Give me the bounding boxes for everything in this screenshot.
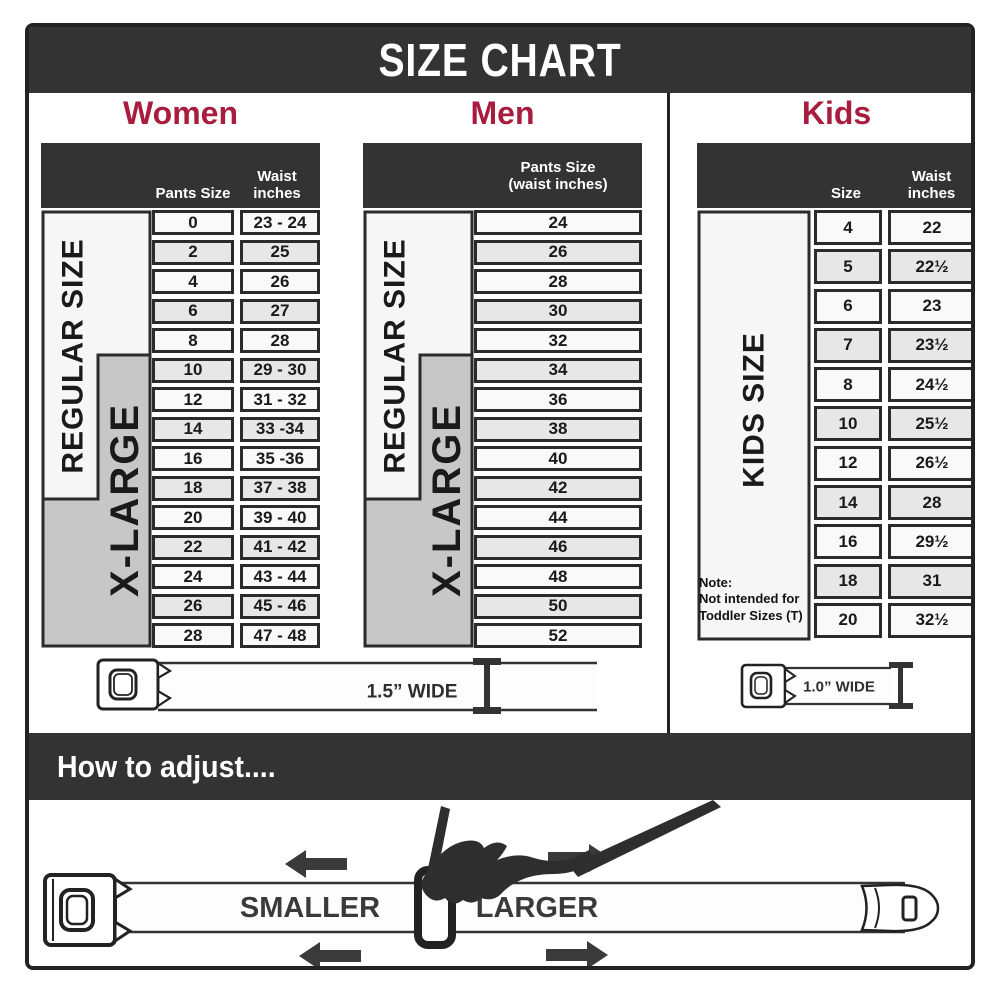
- size-cell: 47 - 48: [240, 623, 320, 648]
- size-cell: 28: [474, 269, 642, 294]
- men-regular-label: REGULAR SIZE: [379, 238, 412, 473]
- size-cell: 25½: [888, 406, 975, 441]
- adult-buckle-icon: [98, 660, 170, 709]
- size-cell: 31: [888, 564, 975, 599]
- men-sidebar: REGULAR SIZE X-LARGE: [363, 210, 474, 648]
- size-cell: 7: [814, 328, 882, 363]
- belt-width-illustrations: 1.5” WIDE 1.0” WIDE: [29, 653, 971, 733]
- size-cell: 48: [474, 564, 642, 589]
- size-cell: 8: [152, 328, 234, 353]
- size-cell: 8: [814, 367, 882, 402]
- size-cell: 42: [474, 476, 642, 501]
- women-title: Women: [41, 95, 320, 132]
- size-cell: 18: [814, 564, 882, 599]
- size-cell: 26: [240, 269, 320, 294]
- men-xlarge-label: X-LARGE: [425, 403, 469, 597]
- size-cell: 4: [814, 210, 882, 245]
- adjust-illustration: SMALLER LARGER: [29, 800, 971, 970]
- larger-arrow-bottom-icon: [546, 941, 608, 969]
- kids-size-grid: 422522½623723½824½1025½1226½14281629½183…: [814, 210, 975, 638]
- size-cell: 12: [814, 446, 882, 481]
- main-area: Women Pants Size Waist inches REGULAR SI…: [29, 93, 971, 733]
- women-xlarge-label: X-LARGE: [103, 403, 147, 597]
- kids-title: Kids: [697, 95, 975, 132]
- women-col1-header: Pants Size: [152, 185, 234, 202]
- size-cell: 40: [474, 446, 642, 471]
- size-cell: 50: [474, 594, 642, 619]
- size-cell: 36: [474, 387, 642, 412]
- size-cell: 22½: [888, 249, 975, 284]
- women-sidebar: REGULAR SIZE X-LARGE: [41, 210, 152, 648]
- size-cell: 16: [814, 524, 882, 559]
- size-cell: 28: [240, 328, 320, 353]
- title-band: SIZE CHART: [29, 27, 971, 93]
- men-size-grid: 242628303234363840424446485052: [474, 210, 642, 648]
- size-cell: 30: [474, 299, 642, 324]
- size-cell: 14: [814, 485, 882, 520]
- smaller-arrow-top-icon: [285, 850, 347, 878]
- size-cell: 20: [814, 603, 882, 638]
- adult-belt-width-label: 1.5” WIDE: [367, 682, 458, 703]
- size-cell: 46: [474, 535, 642, 560]
- size-cell: 32½: [888, 603, 975, 638]
- men-title: Men: [363, 95, 642, 132]
- size-cell: 45 - 46: [240, 594, 320, 619]
- men-col-header: Pants Size (waist inches): [474, 158, 642, 193]
- size-cell: 31 - 32: [240, 387, 320, 412]
- size-cell: 26½: [888, 446, 975, 481]
- size-cell: 27: [240, 299, 320, 324]
- size-cell: 26: [474, 240, 642, 265]
- size-cell: 14: [152, 417, 234, 442]
- size-cell: 28: [888, 485, 975, 520]
- smaller-arrow-bottom-icon: [299, 942, 361, 970]
- size-cell: 4: [152, 269, 234, 294]
- belt-tip: [862, 885, 938, 931]
- size-cell: 23 - 24: [240, 210, 320, 235]
- size-cell: 29½: [888, 524, 975, 559]
- kids-belt-width-label: 1.0” WIDE: [803, 679, 875, 696]
- size-cell: 10: [814, 406, 882, 441]
- page-title: SIZE CHART: [378, 33, 621, 87]
- women-col2-header: Waist inches: [237, 168, 317, 203]
- adjust-illustration-area: SMALLER LARGER: [29, 800, 971, 970]
- size-cell: 24½: [888, 367, 975, 402]
- size-cell: 35 -36: [240, 446, 320, 471]
- kids-col2-header: Waist inches: [887, 168, 975, 203]
- men-table-header: Pants Size (waist inches): [363, 143, 642, 208]
- size-cell: 16: [152, 446, 234, 471]
- adjust-heading: How to adjust....: [57, 749, 276, 785]
- size-cell: 6: [814, 289, 882, 324]
- size-cell: 20: [152, 505, 234, 530]
- size-cell: 41 - 42: [240, 535, 320, 560]
- pulled-strap: [569, 800, 721, 877]
- size-cell: 33 -34: [240, 417, 320, 442]
- size-cell: 34: [474, 358, 642, 383]
- kids-table-header: Size Waist inches: [697, 143, 975, 208]
- size-cell: 23½: [888, 328, 975, 363]
- size-cell: 10: [152, 358, 234, 383]
- size-cell: 12: [152, 387, 234, 412]
- size-cell: 0: [152, 210, 234, 235]
- kids-size-label: KIDS SIZE: [738, 332, 771, 488]
- size-cell: 6: [152, 299, 234, 324]
- size-cell: 39 - 40: [240, 505, 320, 530]
- size-cell: 38: [474, 417, 642, 442]
- women-table-header: Pants Size Waist inches: [41, 143, 320, 208]
- section-divider: [667, 93, 670, 733]
- size-cell: 37 - 38: [240, 476, 320, 501]
- kids-width-marker-icon: [889, 662, 913, 709]
- kids-note: Note: Not intended for Toddler Sizes (T): [699, 575, 814, 624]
- size-cell: 44: [474, 505, 642, 530]
- size-cell: 24: [474, 210, 642, 235]
- adjust-band: How to adjust....: [29, 733, 971, 800]
- size-cell: 25: [240, 240, 320, 265]
- kids-col1-header: Size: [811, 185, 881, 202]
- size-cell: 32: [474, 328, 642, 353]
- women-regular-label: REGULAR SIZE: [57, 238, 90, 473]
- size-chart-frame: SIZE CHART Women Pants Size Waist inches…: [25, 23, 975, 970]
- size-cell: 2: [152, 240, 234, 265]
- size-cell: 43 - 44: [240, 564, 320, 589]
- adult-belt: 1.5” WIDE: [98, 658, 597, 714]
- size-cell: 29 - 30: [240, 358, 320, 383]
- size-cell: 23: [888, 289, 975, 324]
- kids-belt: 1.0” WIDE: [742, 662, 913, 709]
- smaller-label: SMALLER: [240, 892, 380, 924]
- size-cell: 26: [152, 594, 234, 619]
- size-cell: 5: [814, 249, 882, 284]
- size-cell: 24: [152, 564, 234, 589]
- size-cell: 28: [152, 623, 234, 648]
- size-cell: 22: [888, 210, 975, 245]
- size-cell: 22: [152, 535, 234, 560]
- women-size-grid: 023 - 242254266278281029 - 301231 - 3214…: [152, 210, 320, 648]
- size-cell: 18: [152, 476, 234, 501]
- size-cell: 52: [474, 623, 642, 648]
